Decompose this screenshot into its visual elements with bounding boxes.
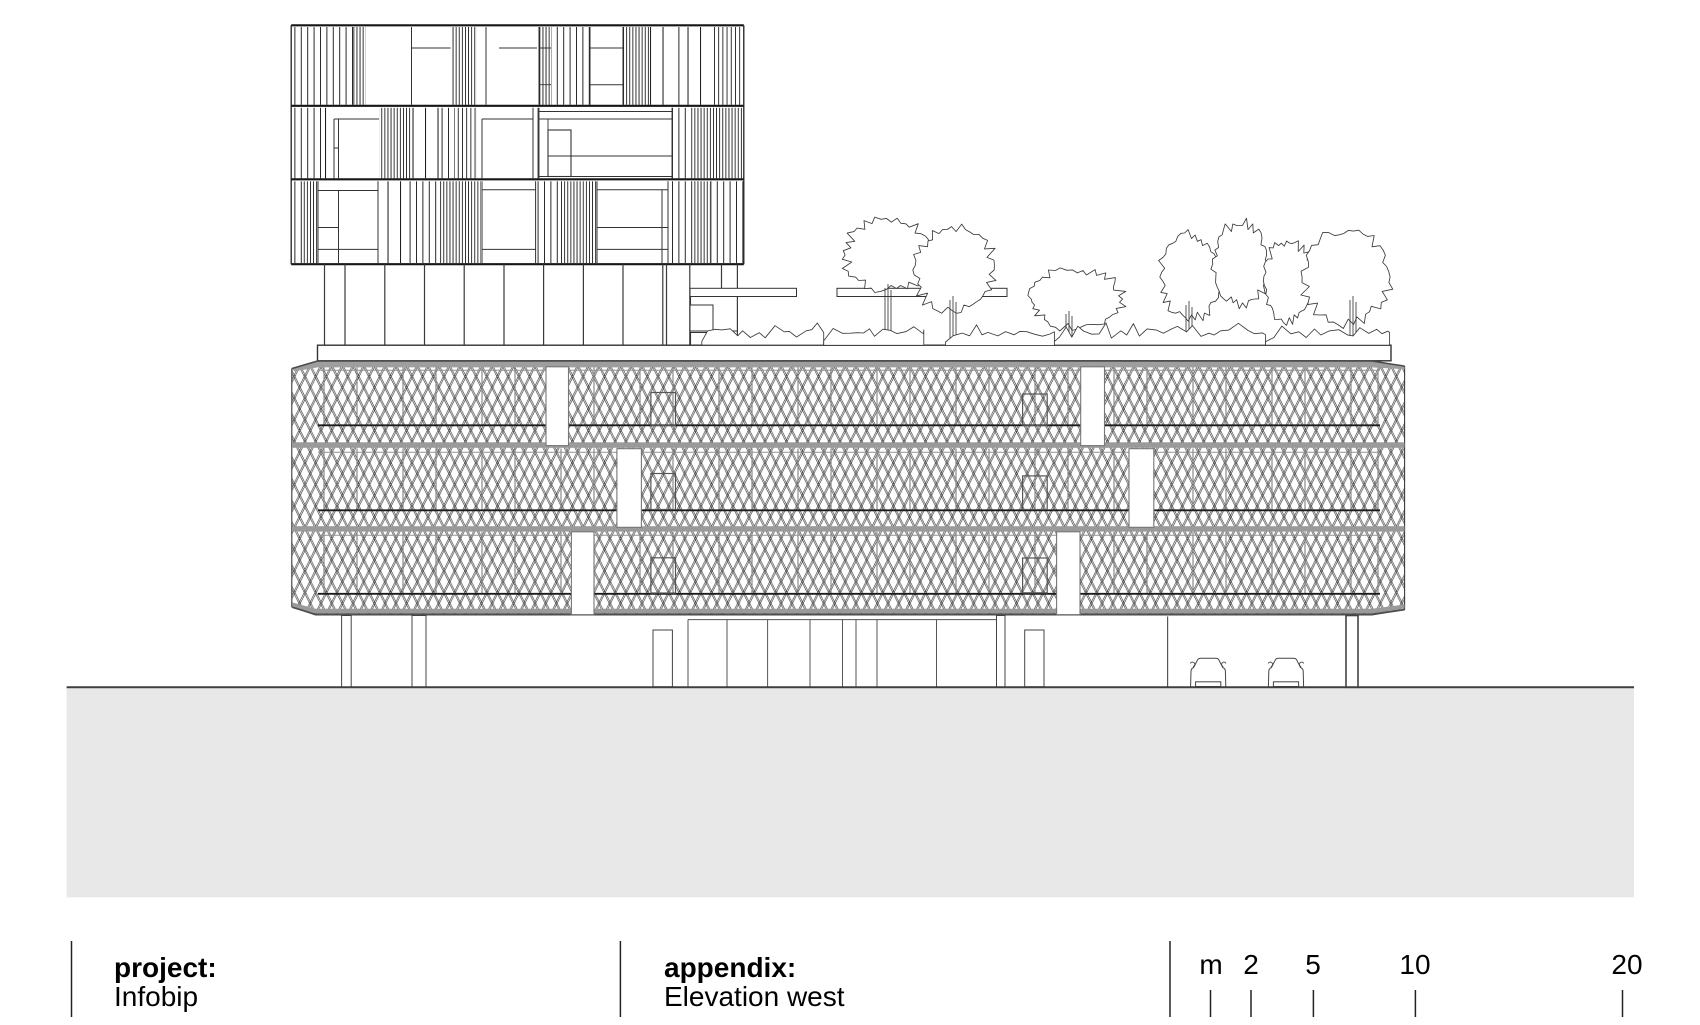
svg-text:project:: project:	[114, 952, 217, 983]
svg-text:Infobip: Infobip	[114, 981, 198, 1012]
svg-text:20: 20	[1611, 949, 1642, 980]
svg-text:2: 2	[1243, 949, 1259, 980]
svg-text:10: 10	[1399, 949, 1430, 980]
svg-text:appendix:: appendix:	[664, 952, 796, 983]
svg-text:Elevation west: Elevation west	[664, 981, 845, 1012]
svg-text:m: m	[1199, 949, 1222, 980]
svg-text:5: 5	[1305, 949, 1321, 980]
